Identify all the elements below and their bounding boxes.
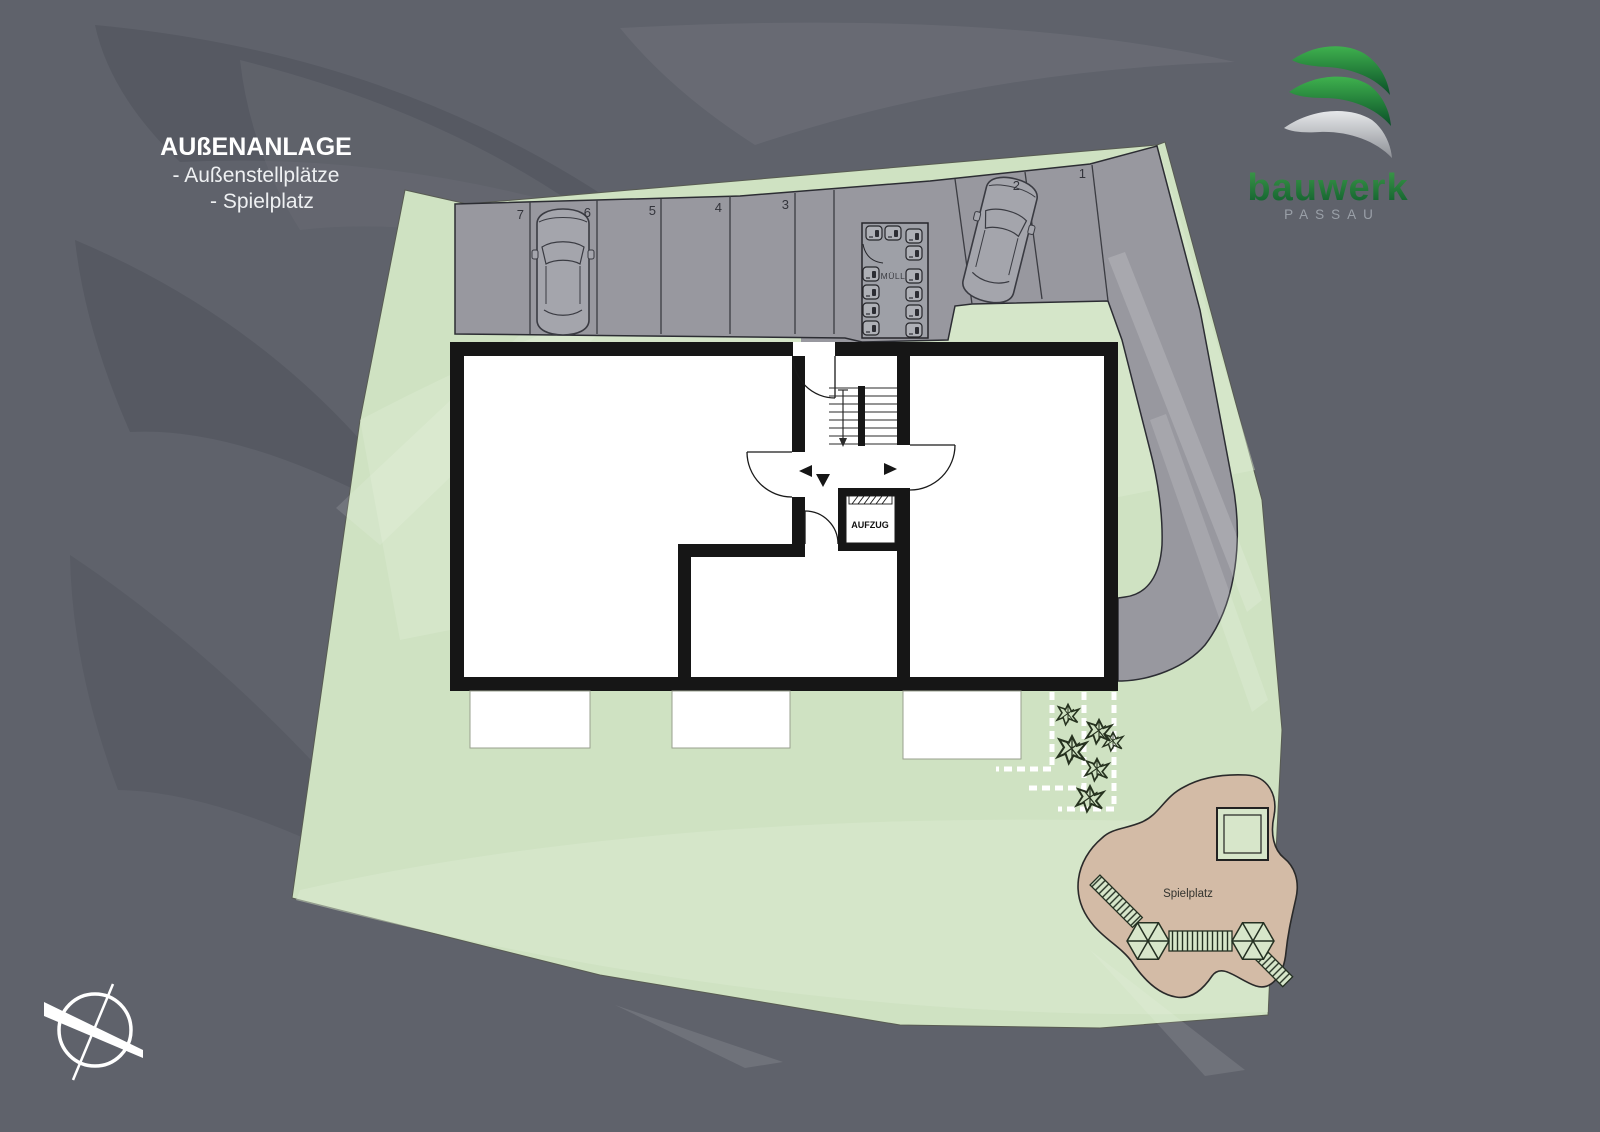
waste-bin-icon [885, 226, 901, 240]
logo-city: PASSAU [1284, 207, 1380, 222]
waste-bin-icon [863, 285, 879, 299]
wall-hall-stub [792, 497, 805, 557]
car-icon-stall6 [532, 209, 594, 335]
parking-number-3: 3 [782, 197, 789, 212]
site-plan-page: 7 6 5 4 3 2 1 MÜLL [0, 0, 1600, 1132]
wall-middle-room-left [678, 544, 691, 677]
entrance-opening [793, 342, 835, 356]
waste-enclosure: MÜLL [862, 223, 928, 338]
parking-number-2: 2 [1013, 178, 1020, 193]
subtitle-2: - Spielplatz [210, 190, 314, 213]
logo-brand: bauwerk [1247, 167, 1408, 209]
parking-number-4: 4 [715, 200, 722, 215]
subtitle-1: - Außenstellplätze [173, 164, 340, 187]
waste-bin-icon [906, 287, 922, 301]
waste-bin-icon [906, 246, 922, 260]
terrace-right [903, 691, 1021, 759]
waste-bin-icon [906, 229, 922, 243]
parking-number-7: 7 [517, 207, 524, 222]
page-title: AUßENANLAGE [160, 133, 352, 161]
parking-number-1: 1 [1079, 166, 1086, 181]
play-bridge [1169, 931, 1232, 951]
waste-bin-icon [863, 321, 879, 335]
waste-bin-icon [866, 226, 882, 240]
parking-number-5: 5 [649, 203, 656, 218]
stair-stringer [858, 386, 865, 446]
playground-label: Spielplatz [1163, 888, 1213, 900]
wall-stairwell-left [792, 356, 805, 452]
sandbox [1217, 808, 1268, 860]
terrace-left [470, 691, 590, 748]
elevator-door-hatch [849, 496, 892, 504]
parking-number-6: 6 [584, 205, 591, 220]
waste-bin-icon [906, 305, 922, 319]
elevator-label: AUFZUG [851, 520, 889, 530]
wall-stairwell-right [897, 356, 910, 445]
building-interior [464, 356, 1104, 677]
waste-bin-icon [863, 303, 879, 317]
building: AUFZUG [450, 342, 1118, 691]
terrace-middle [672, 691, 790, 748]
site-plan-canvas: 7 6 5 4 3 2 1 MÜLL [0, 0, 1600, 1132]
waste-bin-icon [863, 267, 879, 281]
waste-bin-icon [906, 323, 922, 337]
elevator-shaft: AUFZUG [838, 488, 903, 551]
waste-label: MÜLL [881, 271, 906, 281]
wall-middle-room-top [678, 544, 805, 557]
waste-bin-icon [906, 269, 922, 283]
